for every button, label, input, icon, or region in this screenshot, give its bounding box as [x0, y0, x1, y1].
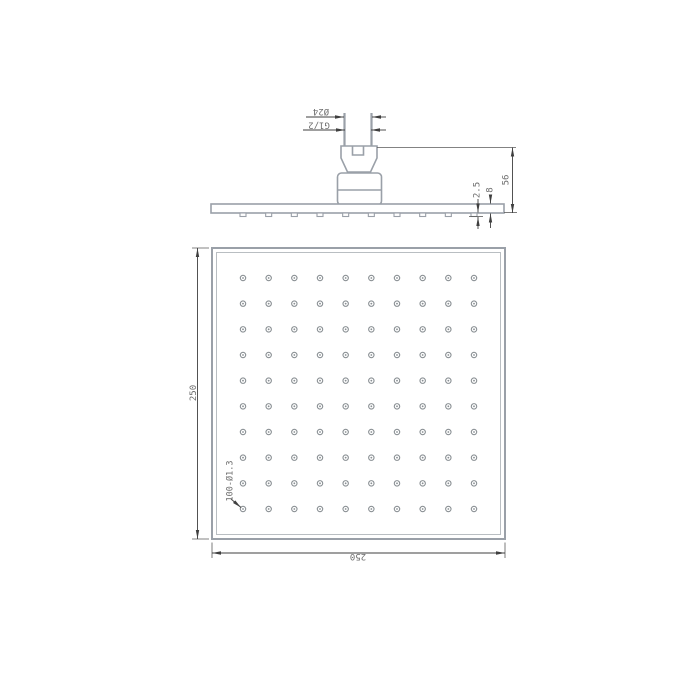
nozzle-hole-center	[370, 405, 372, 407]
nozzle-hole-center	[345, 508, 347, 510]
nozzle-tip	[420, 213, 426, 217]
nozzle-hole-center	[293, 380, 295, 382]
nozzle-hole-center	[268, 508, 270, 510]
nozzle-hole-center	[293, 277, 295, 279]
nozzle-hole-center	[396, 354, 398, 356]
nozzle-hole-center	[447, 303, 449, 305]
nozzle-hole-center	[268, 354, 270, 356]
nozzle-hole-center	[370, 303, 372, 305]
nozzle-hole-center	[268, 405, 270, 407]
nozzle-hole-center	[447, 405, 449, 407]
nozzle-hole-center	[242, 405, 244, 407]
plan-view: 250 250 100-Ø1.3	[189, 248, 505, 561]
nozzle-hole-center	[345, 303, 347, 305]
nozzle-hole-center	[422, 380, 424, 382]
nozzle-hole-center	[319, 354, 321, 356]
nozzle-hole-center	[319, 277, 321, 279]
technical-drawing-canvas: Ø24 G1/2 56 8 2.5 250 250	[0, 0, 700, 700]
nozzle-hole-center	[447, 354, 449, 356]
nozzle-hole-center	[473, 508, 475, 510]
nozzle-hole-center	[293, 457, 295, 459]
nozzle-hole-center	[293, 354, 295, 356]
plate-face	[212, 248, 505, 539]
nozzle-hole-center	[396, 431, 398, 433]
dim-label-plate-thickness: 8	[486, 187, 496, 192]
nozzle-hole-center	[370, 380, 372, 382]
nozzle-hole-center	[447, 380, 449, 382]
nozzle-hole-center	[268, 277, 270, 279]
nozzle-hole-center	[396, 380, 398, 382]
nozzle-hole-center	[370, 482, 372, 484]
nozzle-hole-center	[422, 328, 424, 330]
nozzle-tip	[343, 213, 349, 217]
nozzle-hole-center	[396, 328, 398, 330]
leader-label-holes: 100-Ø1.3	[225, 461, 236, 502]
nozzle-hole-center	[319, 328, 321, 330]
nozzle-hole-center	[370, 457, 372, 459]
dim-label-plate-width: 250	[350, 551, 366, 561]
nozzle-hole-center	[473, 482, 475, 484]
nozzle-hole-center	[242, 303, 244, 305]
nozzle-hole-center	[370, 431, 372, 433]
nozzle-hole-center	[447, 457, 449, 459]
nozzle-hole-center	[268, 482, 270, 484]
nozzle-hole-center	[473, 277, 475, 279]
nozzle-tip	[317, 213, 323, 217]
nozzle-hole-center	[268, 303, 270, 305]
nozzle-hole-center	[345, 380, 347, 382]
nozzle-hole-center	[242, 380, 244, 382]
nozzle-hole-center	[473, 328, 475, 330]
connector-cup	[341, 146, 377, 172]
nozzle-hole-center	[268, 431, 270, 433]
nozzle-hole-center	[473, 380, 475, 382]
nozzle-hole-center	[319, 431, 321, 433]
nozzle-hole-center	[319, 380, 321, 382]
nozzle-hole-center	[293, 482, 295, 484]
nozzle-tip	[368, 213, 374, 217]
dim-label-thread: G1/2	[308, 120, 330, 130]
nozzle-hole-center	[268, 457, 270, 459]
nozzle-hole-center	[345, 328, 347, 330]
nozzle-hole-center	[345, 431, 347, 433]
nozzle-hole-center	[422, 405, 424, 407]
nozzle-hole-center	[422, 457, 424, 459]
nozzle-hole-center	[293, 303, 295, 305]
nozzle-hole-center	[345, 457, 347, 459]
nozzle-hole-center	[396, 457, 398, 459]
nozzle-hole-center	[396, 303, 398, 305]
nozzle-hole-center	[268, 380, 270, 382]
nozzle-hole-center	[293, 405, 295, 407]
nozzle-hole-center	[268, 328, 270, 330]
nozzle-hole-center	[370, 354, 372, 356]
nozzle-hole-center	[473, 354, 475, 356]
nozzle-hole-center	[242, 482, 244, 484]
nozzle-hole-center	[242, 328, 244, 330]
nozzle-hole-center	[422, 431, 424, 433]
nozzle-hole-center	[319, 303, 321, 305]
nozzle-hole-center	[473, 431, 475, 433]
nozzle-hole-center	[293, 508, 295, 510]
nozzle-hole-center	[319, 405, 321, 407]
nozzle-tip	[266, 213, 272, 217]
nozzle-tip	[445, 213, 451, 217]
connector-body	[338, 173, 382, 205]
nozzle-hole-center	[319, 482, 321, 484]
nozzle-hole-center	[319, 457, 321, 459]
shower-head-drawing: Ø24 G1/2 56 8 2.5 250 250	[0, 0, 700, 700]
nozzle-hole-center	[370, 508, 372, 510]
nozzle-hole-center	[370, 328, 372, 330]
nozzle-hole-center	[370, 277, 372, 279]
nozzle-hole-center	[473, 303, 475, 305]
nozzle-hole-center	[447, 277, 449, 279]
nozzle-hole-center	[345, 405, 347, 407]
nozzle-hole-center	[242, 354, 244, 356]
nozzle-hole-center	[293, 328, 295, 330]
nozzle-hole-center	[396, 482, 398, 484]
dim-label-height: 56	[502, 175, 512, 186]
nozzle-hole-center	[293, 431, 295, 433]
nozzle-hole-center	[422, 303, 424, 305]
nozzle-hole-center	[242, 457, 244, 459]
plate-side	[211, 204, 504, 213]
nozzle-hole-center	[422, 482, 424, 484]
nozzle-hole-center	[473, 457, 475, 459]
nozzle-hole-center	[447, 482, 449, 484]
nozzle-hole-center	[242, 277, 244, 279]
nozzle-hole-center	[242, 508, 244, 510]
nozzle-hole-center	[447, 431, 449, 433]
nozzle-hole-center	[422, 508, 424, 510]
nozzle-hole-center	[473, 405, 475, 407]
nozzle-hole-center	[396, 277, 398, 279]
nozzle-hole-center	[447, 328, 449, 330]
nozzle-hole-center	[422, 277, 424, 279]
nozzle-hole-center	[422, 354, 424, 356]
nozzle-tip	[394, 213, 400, 217]
nozzle-tip	[240, 213, 246, 217]
nozzle-hole-center	[345, 482, 347, 484]
nozzle-hole-center	[396, 405, 398, 407]
nozzle-hole-center	[319, 508, 321, 510]
nozzle-hole-center	[396, 508, 398, 510]
nozzle-hole-center	[242, 431, 244, 433]
side-view: Ø24 G1/2 56 8 2.5	[211, 106, 517, 229]
dim-label-plate-height: 250	[189, 385, 199, 401]
nozzle-hole-center	[345, 354, 347, 356]
dim-label-outer-diameter: Ø24	[313, 106, 329, 117]
dim-label-nozzle-protrusion: 2.5	[473, 182, 483, 198]
nozzle-tip	[471, 213, 477, 217]
nozzle-hole-center	[447, 508, 449, 510]
nozzle-tip	[291, 213, 297, 217]
nozzle-hole-center	[345, 277, 347, 279]
